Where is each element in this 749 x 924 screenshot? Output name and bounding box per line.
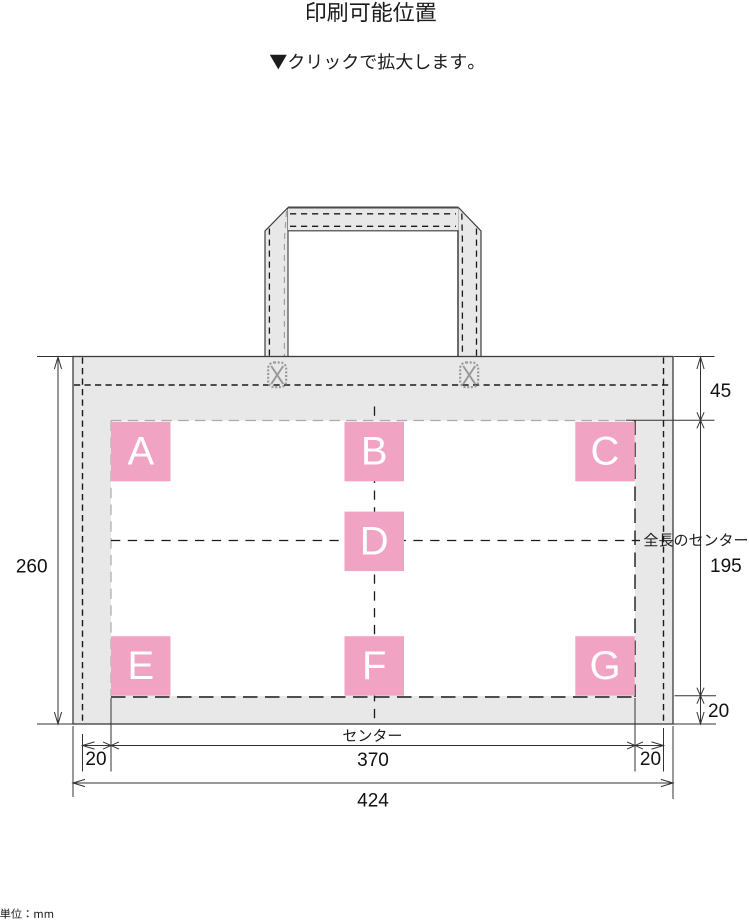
svg-text:G: G — [589, 644, 620, 688]
svg-text:20: 20 — [85, 749, 106, 770]
svg-text:195: 195 — [710, 556, 742, 577]
svg-text:20: 20 — [708, 701, 729, 722]
svg-text:B: B — [361, 430, 388, 474]
svg-text:424: 424 — [357, 791, 389, 812]
svg-text:370: 370 — [357, 750, 389, 771]
svg-text:45: 45 — [710, 381, 731, 402]
svg-text:260: 260 — [16, 557, 48, 578]
svg-text:E: E — [127, 644, 154, 688]
svg-text:C: C — [591, 430, 620, 474]
svg-text:D: D — [360, 520, 389, 564]
svg-text:A: A — [127, 430, 154, 474]
svg-text:F: F — [362, 644, 386, 688]
svg-text:20: 20 — [640, 749, 661, 770]
